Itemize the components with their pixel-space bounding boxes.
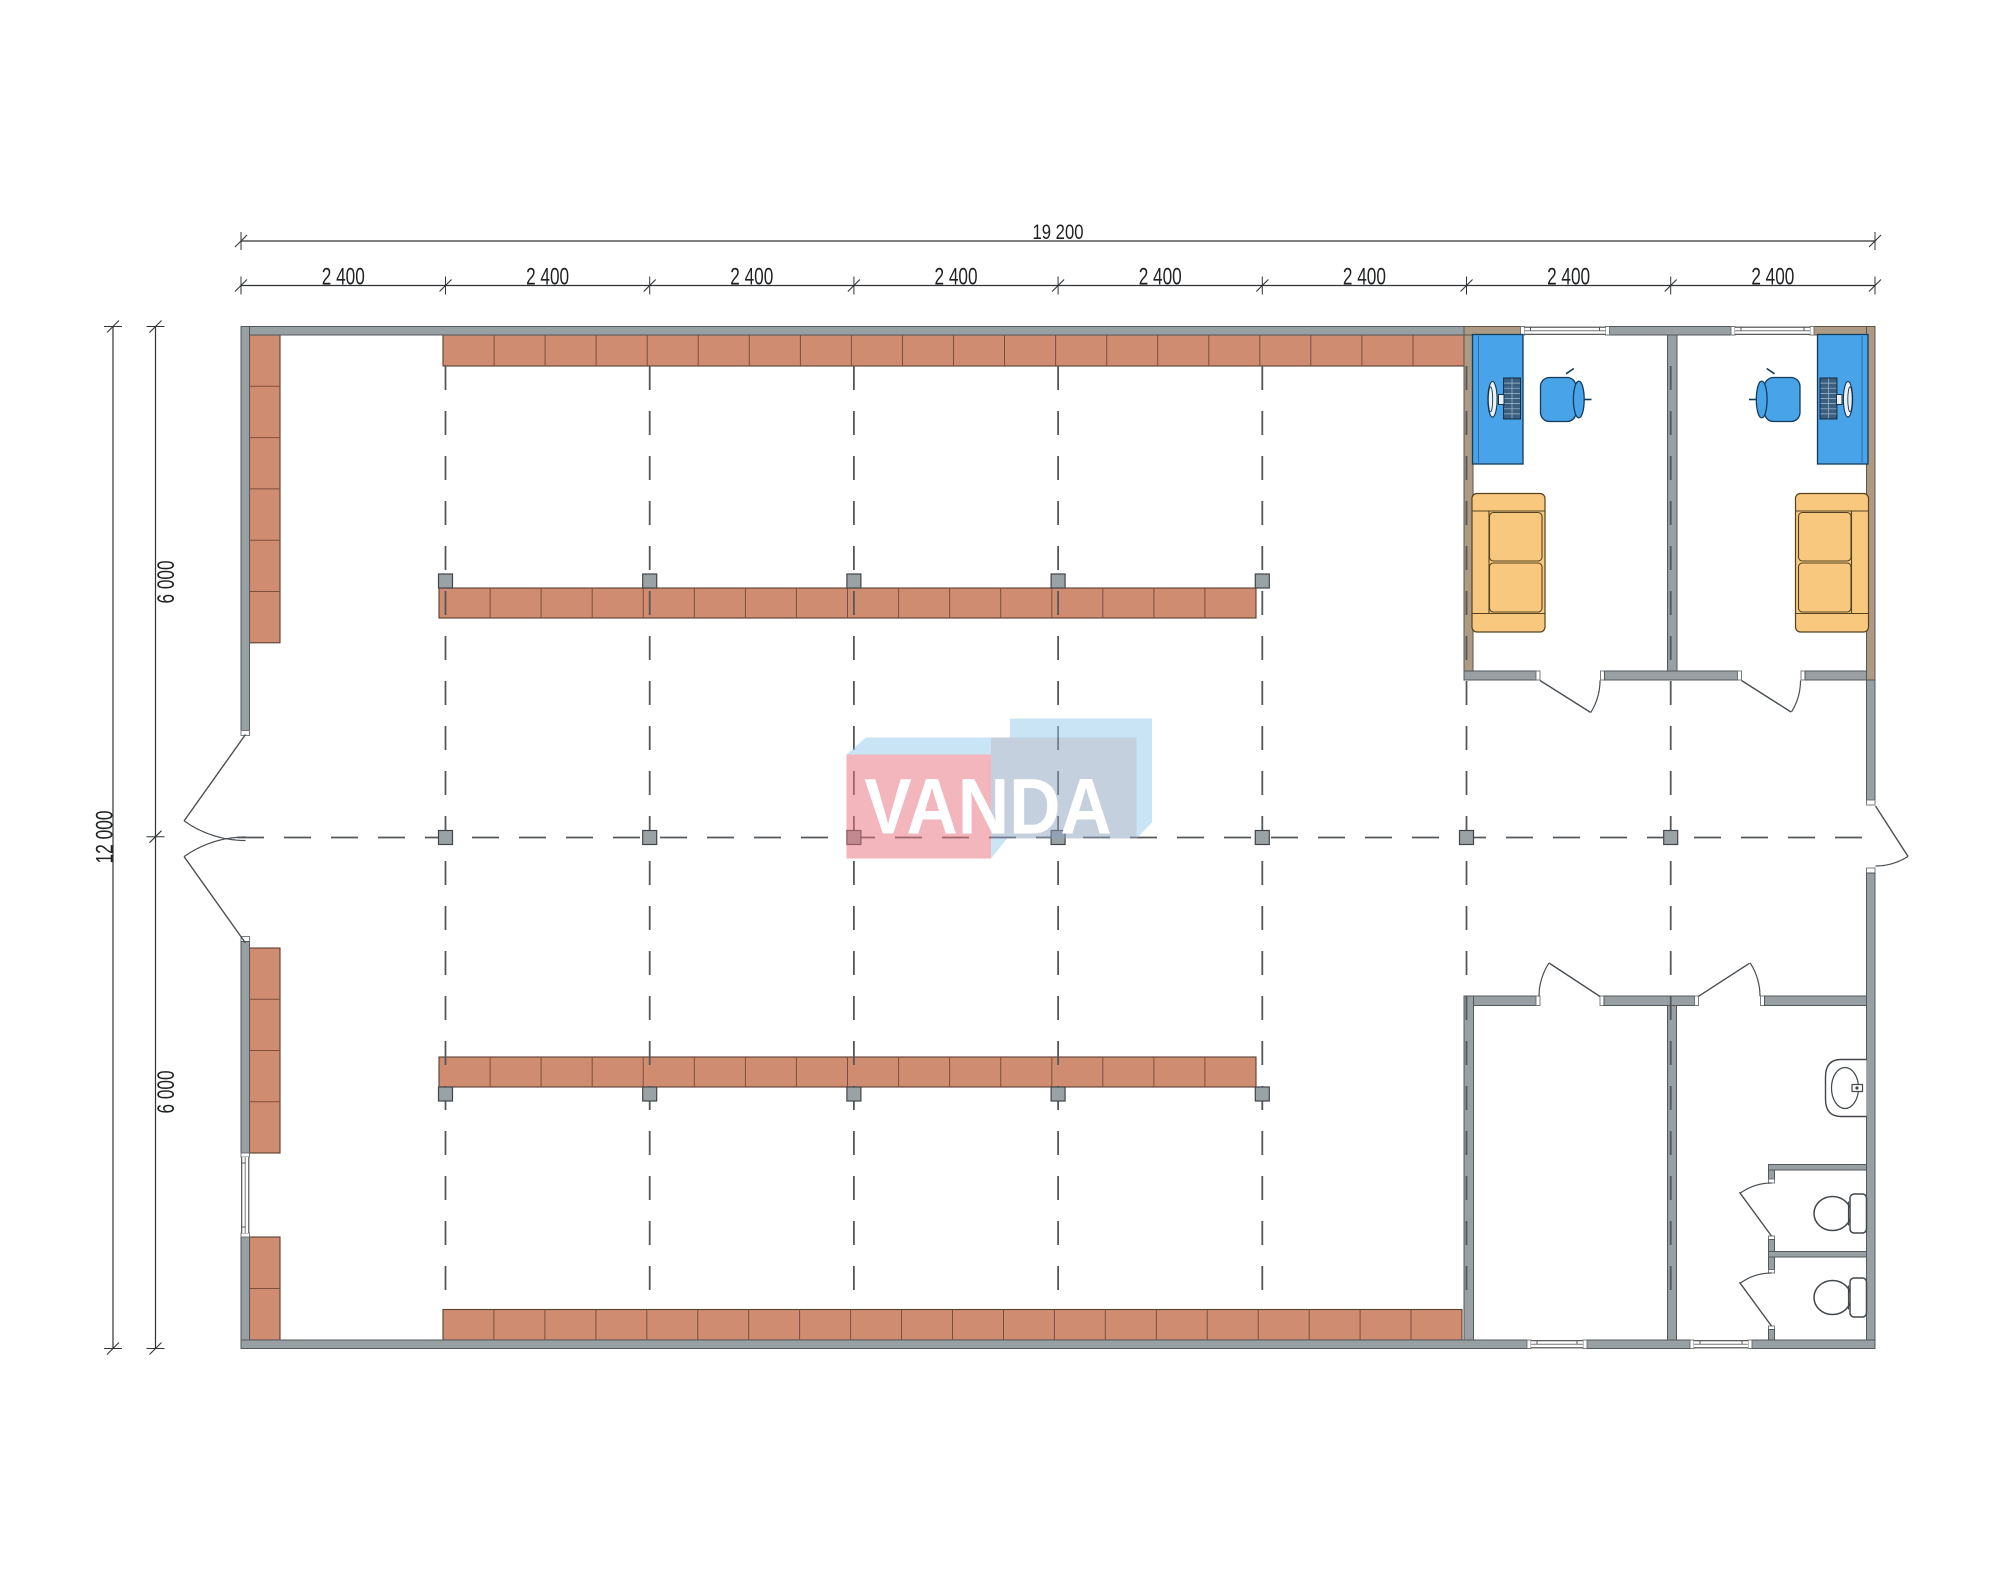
svg-text:12 000: 12 000 <box>92 811 119 864</box>
svg-text:19 200: 19 200 <box>1033 220 1084 244</box>
svg-text:2 400: 2 400 <box>322 264 365 291</box>
svg-text:2 400: 2 400 <box>1547 264 1590 291</box>
svg-text:2 400: 2 400 <box>1343 264 1386 291</box>
svg-text:VANDA: VANDA <box>864 762 1111 850</box>
svg-text:6 000: 6 000 <box>153 561 180 604</box>
svg-text:2 400: 2 400 <box>1139 264 1182 291</box>
svg-text:2 400: 2 400 <box>526 264 569 291</box>
svg-text:2 400: 2 400 <box>935 264 978 291</box>
svg-text:2 400: 2 400 <box>1751 264 1794 291</box>
svg-text:6 000: 6 000 <box>153 1071 180 1114</box>
svg-text:2 400: 2 400 <box>730 264 773 291</box>
